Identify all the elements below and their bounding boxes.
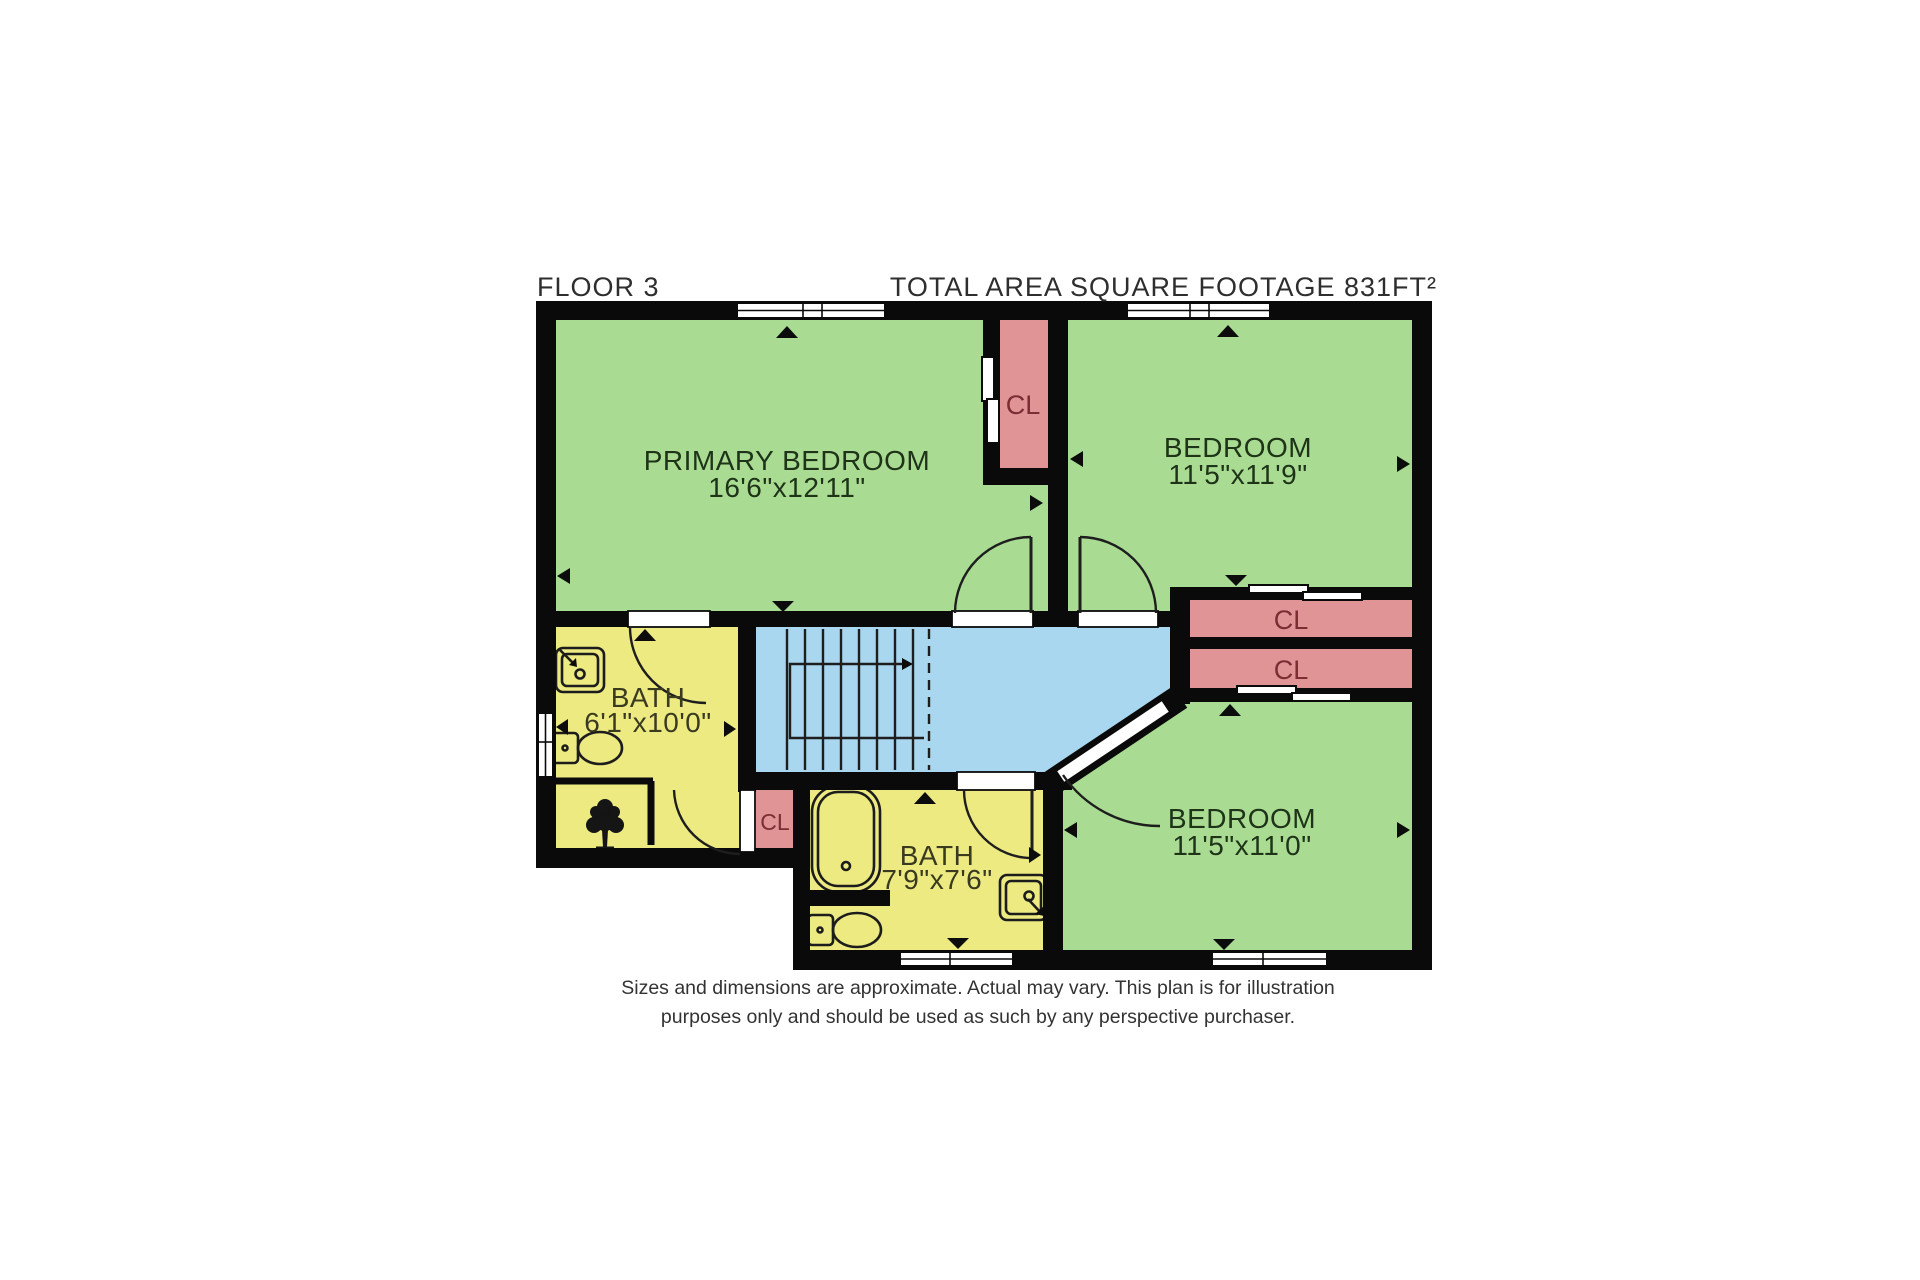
primary-bedroom-dimensions: 16'6"x12'11" xyxy=(708,472,866,503)
floor-plan-svg: FLOOR 3 TOTAL AREA SQUARE FOOTAGE 831FT²… xyxy=(0,0,1920,1280)
wall-bath-hall xyxy=(738,611,756,792)
wall-bath-bottom-left xyxy=(793,772,810,970)
window-left-bath xyxy=(538,713,553,777)
wall-right xyxy=(1412,301,1432,970)
wall-tub-stub xyxy=(810,890,890,906)
window-top-bedroom xyxy=(1127,303,1270,318)
window-bottom-bath xyxy=(900,952,1013,966)
disclaimer-line-1: Sizes and dimensions are approximate. Ac… xyxy=(621,977,1335,999)
sink-bottom-icon xyxy=(1000,875,1047,920)
disclaimer-line-2: purposes only and should be used as such… xyxy=(661,1006,1295,1028)
bath-bottom-dimensions: 7'9"x7'6" xyxy=(881,864,992,895)
wall-bottom xyxy=(793,950,1432,970)
closet-right-lower-label: CL xyxy=(1274,655,1309,685)
wall-top xyxy=(536,301,1432,320)
bedroom-top-right-dimensions: 11'5"x11'9" xyxy=(1168,459,1307,490)
wall-bath-left-bottom xyxy=(536,848,810,868)
wall-between-bedrooms xyxy=(1048,310,1068,619)
closet-hall-nook-label: CL xyxy=(760,809,790,835)
wall-left xyxy=(536,301,556,868)
window-bottom-bedroom xyxy=(1212,952,1327,966)
bedroom-bottom-right-dimensions: 11'5"x11'0" xyxy=(1172,830,1311,861)
closet-top-middle-label: CL xyxy=(1006,390,1041,420)
wall-closets-right-left xyxy=(1170,587,1190,704)
floor-label: FLOOR 3 xyxy=(537,272,660,302)
window-top-primary xyxy=(737,303,885,318)
wall-closets-right-mid xyxy=(1190,637,1412,649)
wall-bath-bedroom xyxy=(1043,772,1063,950)
bath-left-dimensions: 6'1"x10'0" xyxy=(584,707,711,738)
closet-right-upper-label: CL xyxy=(1274,605,1309,635)
area-label: TOTAL AREA SQUARE FOOTAGE 831FT² xyxy=(890,272,1437,302)
sink-left-icon xyxy=(556,648,604,692)
